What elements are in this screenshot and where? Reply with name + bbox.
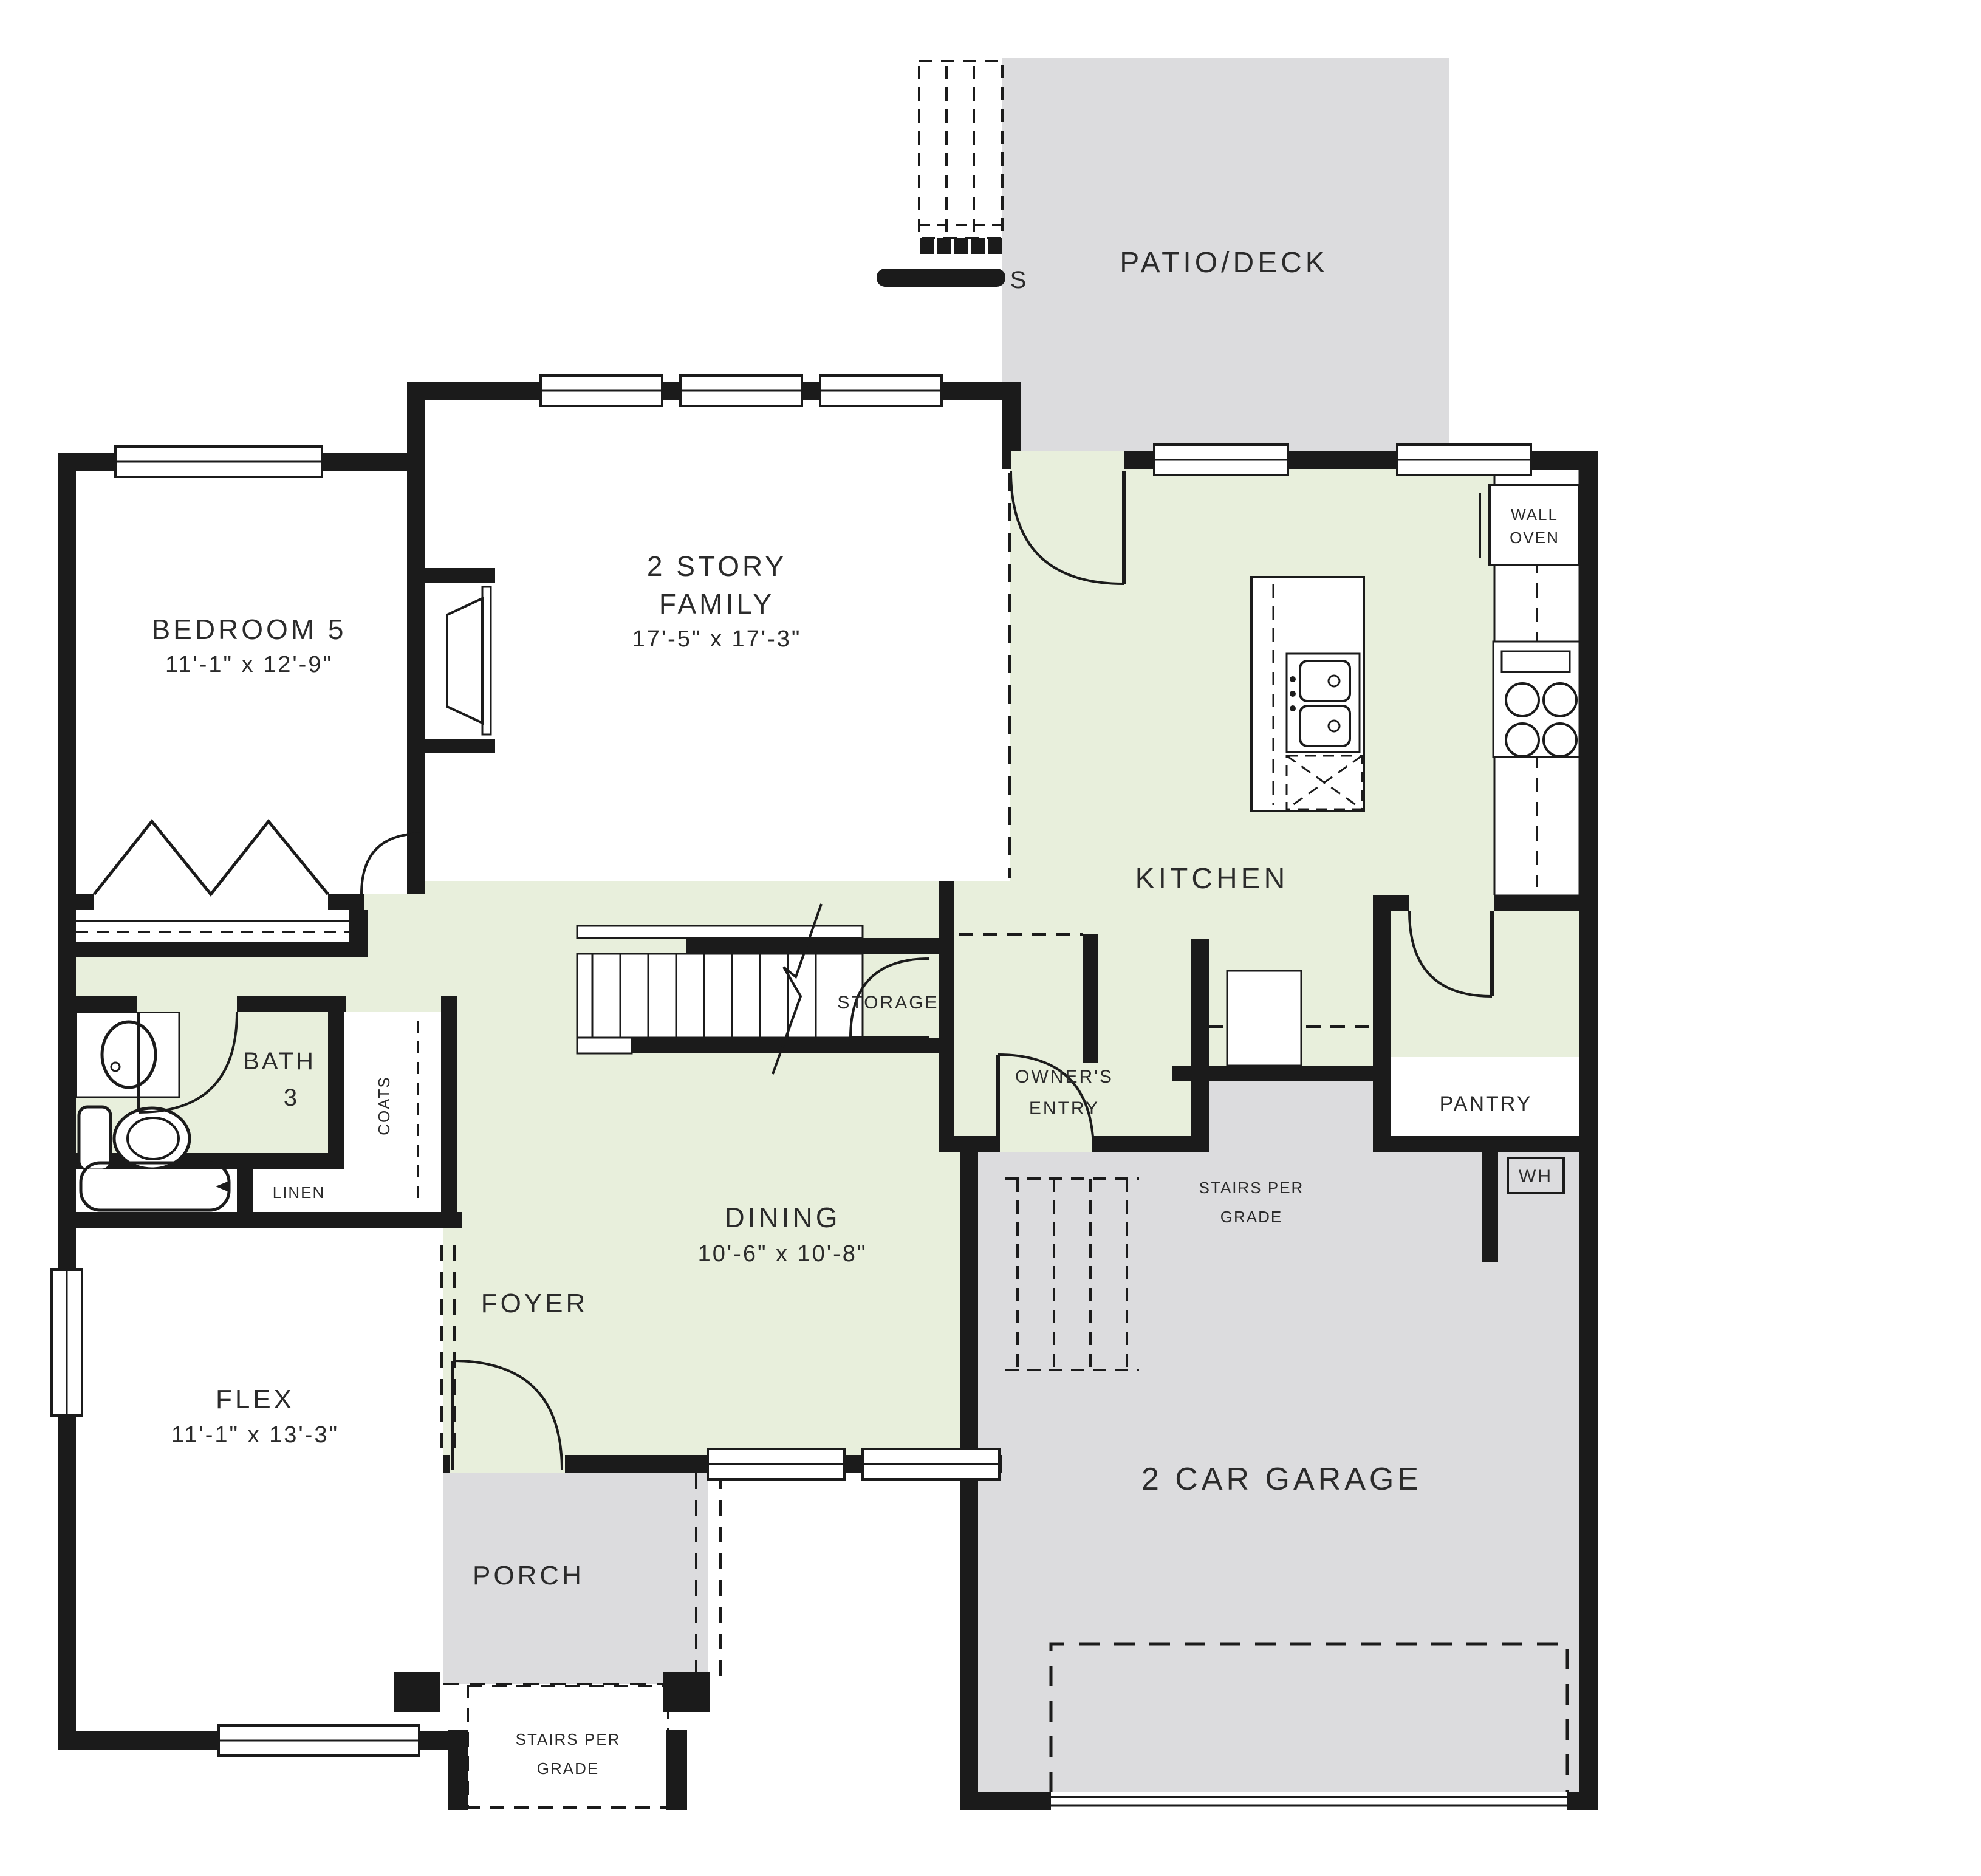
garage-door-opening <box>1051 1792 1567 1810</box>
foyer-label: FOYER <box>481 1289 589 1318</box>
window <box>680 375 802 406</box>
porch-stairs-label-2: GRADE <box>537 1759 599 1778</box>
cooktop <box>1493 642 1579 757</box>
floor-plan-document: S <box>0 0 1981 1876</box>
flex-dims: 11'-1" x 13'-3" <box>171 1422 339 1448</box>
redacted-label-bar <box>877 269 1005 287</box>
family-label-1: 2 STORY <box>647 550 787 582</box>
wall-oven-label-2: OVEN <box>1510 529 1559 547</box>
flex-interior <box>76 1228 443 1731</box>
deck-stairs-label-end: S <box>1010 267 1029 293</box>
bath3-label-2: 3 <box>284 1084 299 1111</box>
wall-oven-label-1: WALL <box>1511 505 1558 524</box>
bedroom5-closet <box>76 821 349 942</box>
window <box>863 1449 999 1479</box>
porch-stairs-label-1: STAIRS PER <box>516 1730 621 1748</box>
bath3-label-1: BATH <box>243 1048 316 1075</box>
window <box>52 1270 82 1416</box>
window <box>219 1725 419 1756</box>
window <box>1397 445 1531 475</box>
bedroom5-dims: 11'-1" x 12'-9" <box>165 652 333 677</box>
kitchen-island <box>1251 577 1364 811</box>
family-label-2: FAMILY <box>659 588 775 620</box>
bedroom5-label: BEDROOM 5 <box>151 614 346 645</box>
owners-entry-label-1: OWNER'S <box>1015 1067 1114 1087</box>
patio-label: PATIO/DECK <box>1120 247 1329 279</box>
garage-label: 2 CAR GARAGE <box>1141 1462 1422 1497</box>
garage-stairs-label-2: GRADE <box>1220 1208 1282 1226</box>
coats-label: COATS <box>375 1076 393 1135</box>
bifold-doors <box>94 821 328 894</box>
window <box>820 375 942 406</box>
fireplace-niche <box>425 568 495 753</box>
window <box>115 447 322 477</box>
pantry-label: PANTRY <box>1440 1092 1533 1115</box>
garage-stairs-label-1: STAIRS PER <box>1199 1179 1304 1197</box>
window <box>1154 445 1288 475</box>
dining-label: DINING <box>725 1202 841 1233</box>
wall-oven-box <box>1490 485 1579 565</box>
flex-label: FLEX <box>216 1385 295 1414</box>
pantry-corridor-floor <box>1391 895 1579 1057</box>
window <box>708 1449 844 1479</box>
linen-label: LINEN <box>273 1183 326 1202</box>
porch-label: PORCH <box>473 1561 584 1590</box>
dining-dims: 10'-6" x 10'-8" <box>698 1241 867 1267</box>
toilet-tank <box>79 1107 111 1170</box>
window <box>541 375 662 406</box>
kitchen-label: KITCHEN <box>1135 863 1289 895</box>
storage-label: STORAGE <box>837 993 939 1013</box>
vanity-counter <box>76 1012 179 1097</box>
wh-label: WH <box>1519 1166 1553 1186</box>
family-dims: 17'-5" x 17'-3" <box>632 626 802 652</box>
tub-room <box>76 1169 237 1212</box>
garage-wedge-floor <box>1191 1081 1391 1152</box>
owners-entry-label-2: ENTRY <box>1029 1098 1100 1118</box>
